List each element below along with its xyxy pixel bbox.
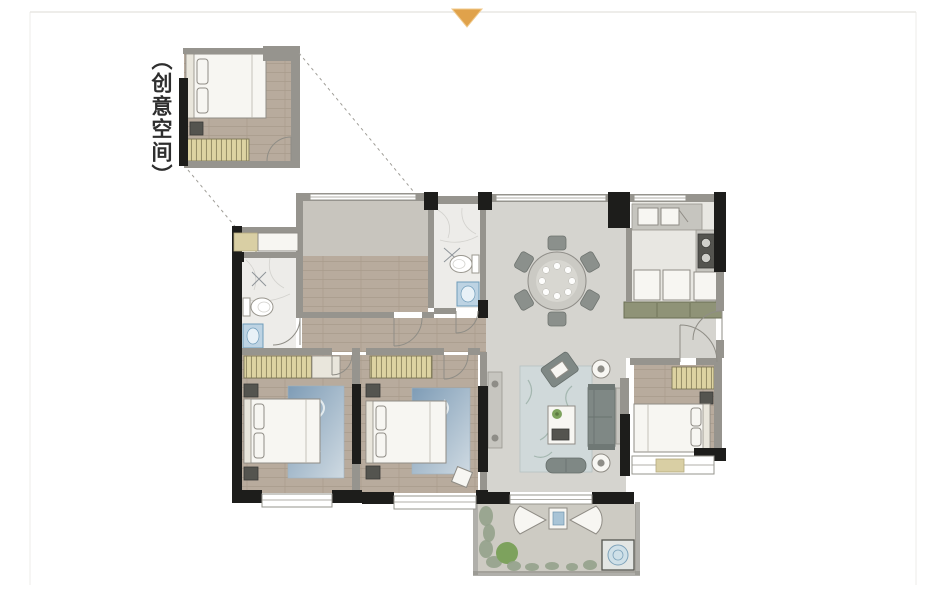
double-bed-icon [366,401,446,463]
creative-space-inset [179,46,300,168]
inset-bed [186,54,266,118]
bay-seat-tan [656,459,684,472]
entry-hall-floor [626,318,716,358]
toilet-tank [243,298,250,316]
sofa-icon [588,384,615,450]
bay-window-bedroom-2 [394,496,476,509]
wardrobe-icon [672,367,714,389]
floor-plan-page: （创意空间） [0,0,943,590]
nightstand [366,466,380,479]
toilet-tank [472,255,479,273]
wardrobe-icon [370,356,432,378]
nightstand [700,392,713,404]
kitchen-cabinet-1 [634,270,660,300]
kitchen-cabinet-2 [663,270,690,300]
floor-drain-icon [602,540,634,570]
kitchen-sink-2 [661,208,679,225]
creative-space-label: （创意空间） [143,40,177,196]
flex-room-floor-lower [302,256,428,312]
callout-line-right [299,53,418,197]
double-bed-icon [244,399,320,463]
nightstand [366,384,380,397]
triangle-down-marker-icon [452,9,482,27]
kitchen-sink-icon [638,208,658,225]
balcony-wall-left [473,502,478,575]
bay-window-bedroom-1 [262,494,332,507]
niche-cabinet-white [258,233,298,251]
kitchen-bar-cabinet [624,302,722,318]
plant-icon [496,542,518,564]
floor-plan-svg [0,0,943,590]
inset-nightstand [190,122,203,135]
niche-cabinet-tan [234,233,258,251]
main-floor-plan [232,192,726,576]
flex-room-floor-upper [302,200,428,256]
nightstand [244,467,258,480]
single-bed-icon [634,404,710,452]
balcony-wall-right [635,502,640,575]
wardrobe-icon [244,356,312,378]
callout-line-left [188,170,268,266]
balcony-wall-bottom [473,571,640,576]
coffee-table-icon [548,406,575,444]
nightstand [244,384,258,397]
fridge-icon [694,272,718,300]
inset-shelf-bench [187,139,249,161]
